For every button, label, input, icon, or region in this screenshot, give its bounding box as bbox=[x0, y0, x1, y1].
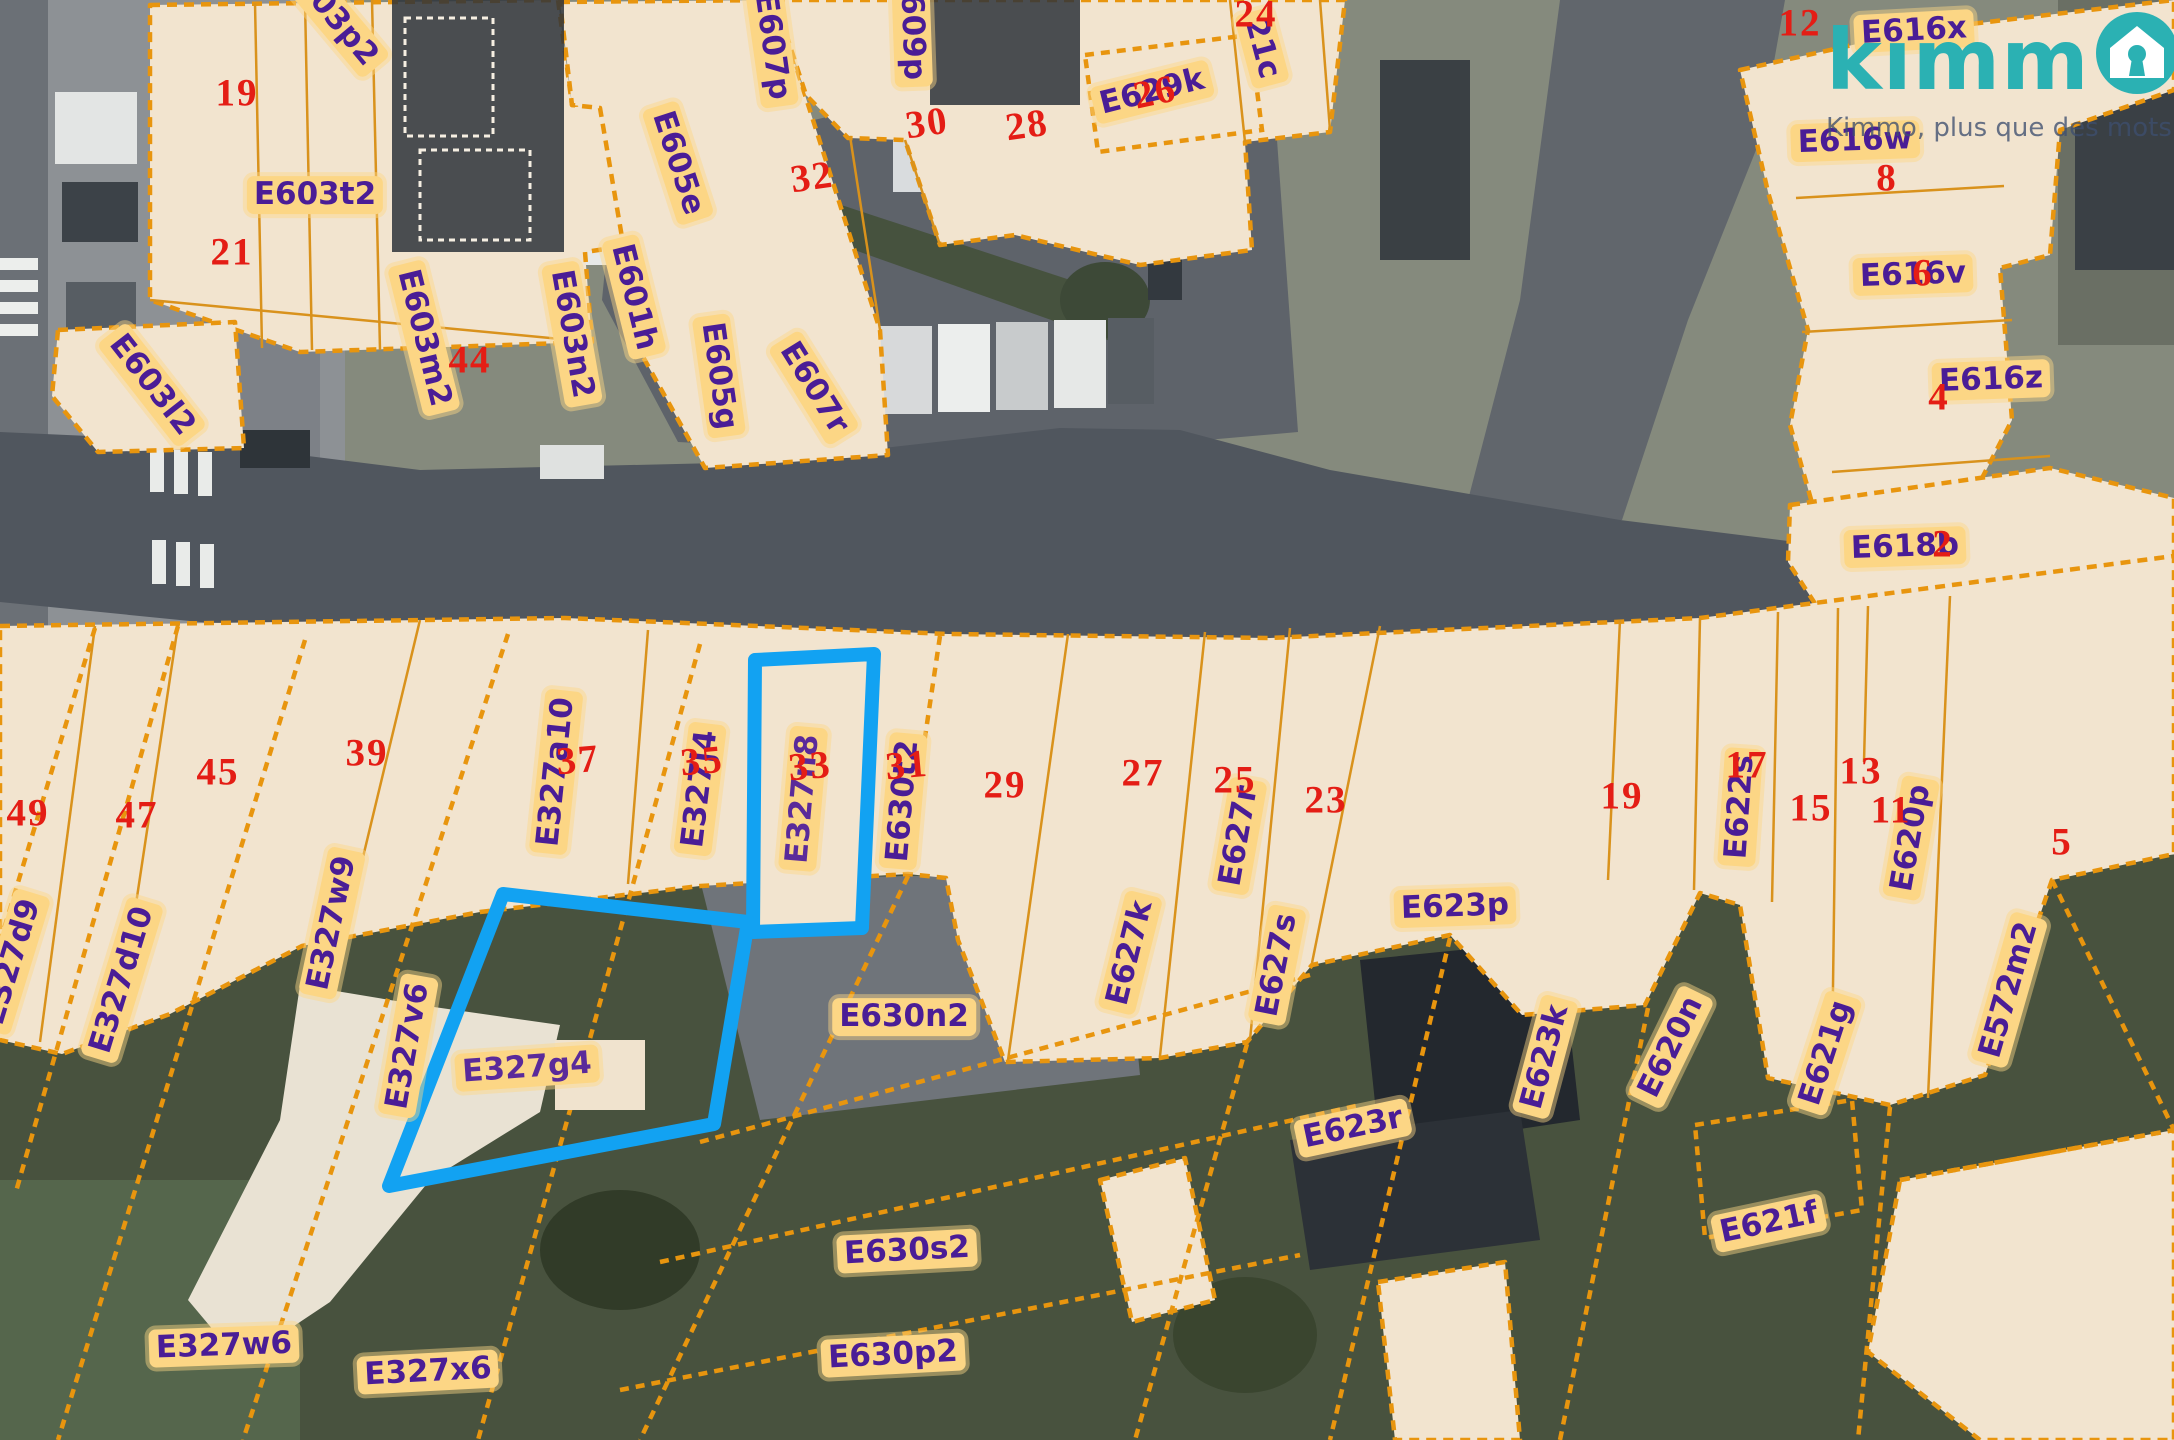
kimmo-house-icon bbox=[2094, 10, 2174, 109]
street-number-35: 35 bbox=[679, 737, 726, 786]
street-number-37: 37 bbox=[555, 736, 602, 785]
parcel-label-E621g[interactable]: E621g bbox=[1789, 989, 1863, 1117]
street-number-44: 44 bbox=[449, 338, 492, 383]
parcel-label-E327w9[interactable]: E327w9 bbox=[298, 846, 366, 1001]
street-number-32: 32 bbox=[788, 152, 837, 203]
street-number-19: 19 bbox=[1601, 774, 1644, 819]
parcel-label-E605e[interactable]: E605e bbox=[641, 100, 714, 227]
parcel-label-E603n2[interactable]: E603n2 bbox=[541, 260, 603, 408]
street-number-25: 25 bbox=[1214, 758, 1257, 803]
parcel-label-E630p2[interactable]: E630p2 bbox=[820, 1332, 965, 1377]
street-number-17: 17 bbox=[1726, 743, 1769, 788]
street-number-45: 45 bbox=[197, 750, 240, 795]
parcel-label-E327w6[interactable]: E327w6 bbox=[148, 1324, 299, 1367]
parcel-label-E572m2[interactable]: E572m2 bbox=[1970, 911, 2049, 1069]
street-number-11: 11 bbox=[1871, 788, 1912, 833]
parcel-label-E603t2[interactable]: E603t2 bbox=[247, 176, 383, 214]
parcel-label-E623r[interactable]: E623r bbox=[1293, 1098, 1414, 1159]
parcel-label-E607r[interactable]: E607r bbox=[767, 329, 860, 447]
parcel-label-E327g4[interactable]: E327g4 bbox=[454, 1044, 600, 1092]
street-number-15: 15 bbox=[1790, 786, 1833, 831]
street-number-27: 27 bbox=[1122, 751, 1165, 796]
logo-tagline: Kimmo, plus que des mots ! bbox=[1826, 113, 2174, 143]
street-number-33: 33 bbox=[787, 742, 834, 791]
street-number-4: 4 bbox=[1928, 375, 1950, 420]
street-number-6: 6 bbox=[1912, 251, 1934, 296]
parcel-label-E620n[interactable]: E620n bbox=[1627, 984, 1714, 1110]
parcel-label-E601h[interactable]: E601h bbox=[601, 233, 667, 360]
parcel-label-E623k[interactable]: E623k bbox=[1511, 994, 1579, 1120]
street-number-23: 23 bbox=[1305, 778, 1348, 823]
street-number-30: 30 bbox=[903, 98, 952, 149]
parcel-label-E609p[interactable]: E609p bbox=[891, 0, 933, 88]
street-number-31: 31 bbox=[884, 741, 931, 790]
parcel-label-E621f[interactable]: E621f bbox=[1710, 1193, 1829, 1254]
street-number-5: 5 bbox=[2051, 820, 2073, 865]
parcel-label-E627s[interactable]: E627s bbox=[1247, 903, 1307, 1026]
kimmo-logo: kımm Kimmo, plus que des mots ! bbox=[1826, 10, 2174, 160]
street-number-47: 47 bbox=[116, 793, 159, 838]
parcel-label-E605g[interactable]: E605g bbox=[692, 313, 746, 439]
parcel-label-E327v6[interactable]: E327v6 bbox=[377, 973, 439, 1119]
street-number-26: 26 bbox=[1129, 66, 1180, 119]
parcel-label-E327d9[interactable]: E327d9 bbox=[0, 888, 51, 1036]
parcel-label-E607p[interactable]: E607p bbox=[745, 0, 799, 109]
parcel-label-E603l2[interactable]: E603l2 bbox=[96, 321, 207, 448]
street-number-28: 28 bbox=[1003, 100, 1052, 151]
parcel-label-E630s2[interactable]: E630s2 bbox=[836, 1228, 978, 1273]
parcel-label-E627k[interactable]: E627k bbox=[1097, 890, 1163, 1016]
street-number-29: 29 bbox=[984, 763, 1027, 808]
street-number-12: 12 bbox=[1779, 1, 1822, 46]
street-number-2: 2 bbox=[1932, 522, 1954, 567]
street-number-24: 24 bbox=[1235, 0, 1278, 37]
parcel-label-E327x6[interactable]: E327x6 bbox=[356, 1349, 499, 1394]
parcel-label-E327d10[interactable]: E327d10 bbox=[80, 895, 164, 1064]
parcel-label-E603p2[interactable]: E603p2 bbox=[269, 0, 390, 79]
parcel-label-E630n2[interactable]: E630n2 bbox=[832, 998, 976, 1036]
street-number-8: 8 bbox=[1876, 156, 1898, 201]
street-number-19: 19 bbox=[216, 71, 259, 116]
logo-text: kımm bbox=[1826, 18, 2090, 102]
street-number-39: 39 bbox=[346, 731, 389, 776]
map-labels-layer: E603p2E603t2E603l2E603m2E603n2E601hE605e… bbox=[0, 0, 2174, 1440]
parcel-label-E623p[interactable]: E623p bbox=[1393, 886, 1516, 928]
map-canvas[interactable]: E603p2E603t2E603l2E603m2E603n2E601hE605e… bbox=[0, 0, 2174, 1440]
kimmo-logo-word: kımm bbox=[1826, 10, 2174, 109]
street-number-21: 21 bbox=[211, 230, 254, 275]
street-number-49: 49 bbox=[7, 791, 50, 836]
